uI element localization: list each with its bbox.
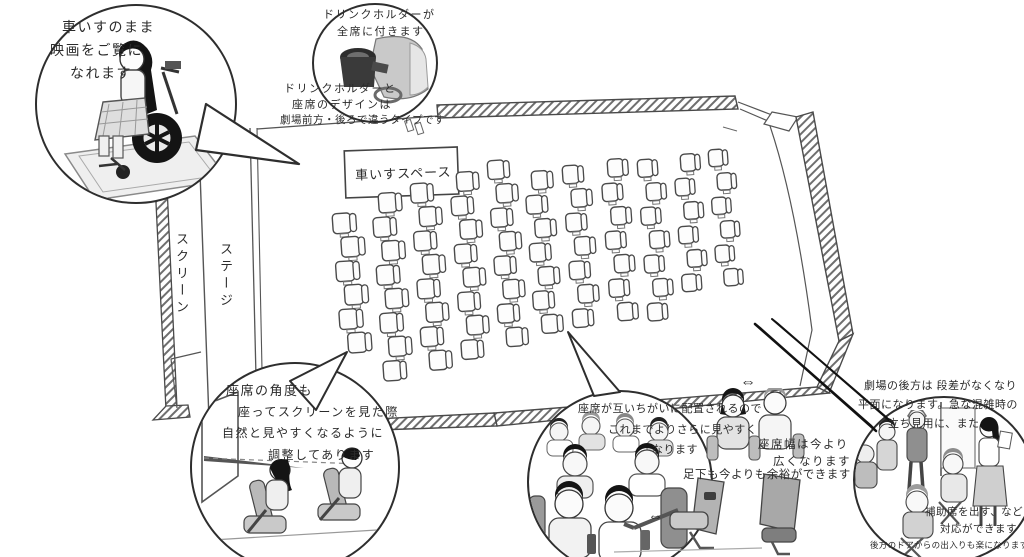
crowd-front-row xyxy=(529,481,687,557)
drink-note-line3: 劇場前方・後ろで違うタイプです xyxy=(280,115,445,126)
drink-bubble-line1: ドリンクホルダーが xyxy=(323,10,436,21)
rear-flat-line2: 平面になります。急な混雑時の xyxy=(858,400,1018,411)
theater-renovation-illustration: 車いすスペース スクリーン ステージ xyxy=(0,0,1024,557)
aux-seats-line3: 後方のドアからの出入りも楽になります xyxy=(870,541,1024,550)
seat-angle-line1: 座席の角度も xyxy=(226,384,313,397)
drink-note-line2: 座席のデザインは xyxy=(292,100,392,111)
seat-column xyxy=(410,182,453,371)
rear-pointer-line-1 xyxy=(755,324,876,431)
aux-seats-line2: 対応ができます xyxy=(940,524,1017,535)
seat-map xyxy=(332,148,744,381)
rear-flat-line3: 立ち見用に、また xyxy=(888,419,980,430)
legroom-arrow-icon: ⇔ xyxy=(648,508,663,525)
seat-column xyxy=(600,158,639,321)
legroom-line: 足下も今よりも余裕ができます xyxy=(683,470,851,482)
seat-column xyxy=(524,170,564,334)
drink-bubble-line2: 全席に付きます xyxy=(337,27,425,38)
wheelchair-bubble-line3: なれます xyxy=(70,66,132,80)
stage-label: ステージ xyxy=(216,242,235,310)
seat-angle-line2: 座ってスクリーンを見た際 xyxy=(238,406,399,418)
staggered-line2: これまでよりさらに見やすく xyxy=(608,425,757,436)
seat-column xyxy=(371,192,414,381)
seat-column xyxy=(673,153,709,292)
seat-column xyxy=(562,164,601,328)
seat-column xyxy=(332,212,372,354)
staggered-bubble-tail xyxy=(568,332,620,396)
staggered-line3: なります xyxy=(652,445,698,456)
seat-column xyxy=(487,159,529,347)
wheelchair-bubble-line2: 映画をご覧に xyxy=(50,43,143,57)
drink-note-line1: ドリンクホルダーと xyxy=(284,84,397,95)
seat-column xyxy=(449,171,491,360)
seat-width-line2: 広くなります xyxy=(773,457,851,469)
staggered-line1: 座席が互いちがいに配置されるので xyxy=(578,404,762,415)
seat-width-arrow-icon: ⇔ xyxy=(740,374,756,392)
wheelchair-space-label: 車いすスペース xyxy=(355,161,452,183)
seat-column xyxy=(708,148,744,286)
wheelchair-user-figure xyxy=(37,6,235,202)
seat-angle-line3: 自然と見やすくなるように xyxy=(222,427,384,439)
seat-width-line1: 座席幅は今より xyxy=(758,440,849,452)
rear-flat-line1: 劇場の後方は 段差がなくなり xyxy=(864,381,1017,392)
screen-label: スクリーン xyxy=(172,232,191,317)
viewer-figure-1 xyxy=(244,459,292,533)
wheelchair-bubble-line1: 車いすのまま xyxy=(62,20,155,34)
aux-seats-line1: 補助席を出す、などの xyxy=(925,507,1024,518)
seat-angle-line4: 調整してあります xyxy=(268,449,375,461)
seat-column xyxy=(637,158,675,321)
